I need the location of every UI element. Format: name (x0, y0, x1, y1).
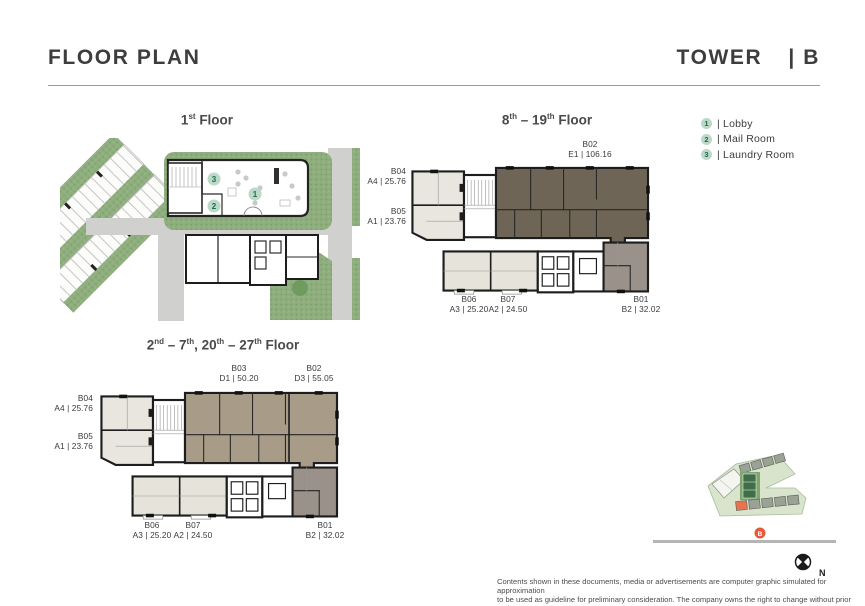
driveway (158, 235, 184, 321)
legend-badge-3: 3 (701, 149, 712, 160)
svg-text:2: 2 (212, 202, 217, 211)
unit-label-b02-mid: B02D3 | 55.05 (284, 364, 344, 383)
svg-text:1: 1 (253, 190, 258, 199)
center-building (743, 474, 756, 498)
mid-floor-plan (97, 384, 353, 520)
floor-plan-page: FLOOR PLAN TOWER| B 1st Floor 8th – 19th… (0, 0, 865, 606)
highlighted-tower-b (736, 500, 748, 510)
tower-word: TOWER (677, 46, 763, 69)
stairwell (168, 163, 202, 213)
unit-label-b04-mid: B04A4 | 25.76 (45, 394, 93, 413)
legend-item-laundry-room: 3 | Laundry Room (701, 147, 794, 162)
unit-label-b01-high: B01B2 | 32.02 (617, 295, 665, 314)
tower-label: TOWER| B (677, 46, 820, 70)
tree-icon (292, 280, 308, 296)
unit-label-b07-mid: B07A2 | 24.50 (169, 521, 217, 540)
disclaimer-line-2: to be used as guideline for preliminary … (497, 595, 851, 606)
page-title: FLOOR PLAN (48, 46, 201, 70)
disclaimer-line-1: Contents shown in these documents, media… (497, 577, 851, 595)
unit-label-b05-mid: B05A1 | 23.76 (45, 432, 93, 451)
unit-label-b02-high: B02E1 | 106.16 (558, 140, 622, 159)
site-key-map: B (700, 452, 810, 542)
mid-floor-title: 2nd – 7th, 20th – 27th Floor (123, 337, 323, 353)
svg-text:3: 3 (212, 175, 217, 184)
disclaimer: Contents shown in these documents, media… (497, 577, 851, 606)
high-floor-title: 8th – 19th Floor (447, 112, 647, 128)
legend-item-lobby: 1 | Lobby (701, 116, 794, 131)
tower-letter: | B (788, 46, 820, 69)
unit-label-b07-high: B07A2 | 24.50 (484, 295, 532, 314)
unit-label-b04-high: B04A4 | 25.76 (358, 167, 406, 186)
first-floor-title: 1st Floor (107, 112, 307, 128)
legend: 1 | Lobby 2 | Mail Room 3 | Laundry Room (701, 116, 794, 163)
unit-label-b01-mid: B01B2 | 32.02 (301, 521, 349, 540)
north-compass-icon: N (793, 552, 829, 578)
legend-badge-1: 1 (701, 118, 712, 129)
high-floor-plan (408, 159, 664, 295)
legend-badge-2: 2 (701, 134, 712, 145)
header-divider (48, 85, 820, 86)
footer-divider (653, 540, 836, 543)
unit-label-b03-mid: B03D1 | 50.20 (209, 364, 269, 383)
legend-item-mail-room: 2 | Mail Room (701, 132, 794, 147)
first-floor-plan: 3 2 1 (60, 138, 360, 323)
unit-label-b05-high: B05A1 | 23.76 (358, 207, 406, 226)
svg-text:B: B (758, 531, 763, 538)
